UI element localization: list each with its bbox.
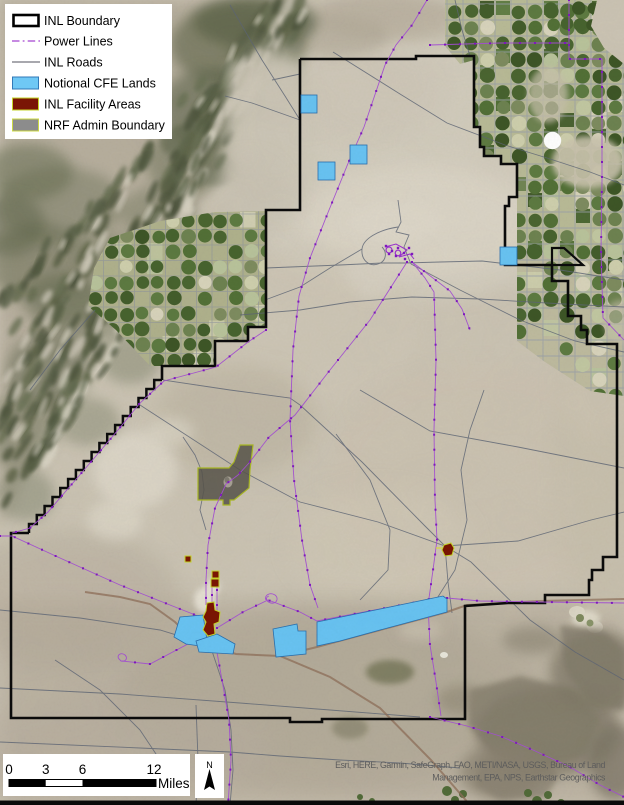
svg-text:N: N: [206, 760, 213, 770]
svg-text:INL Boundary: INL Boundary: [44, 14, 121, 28]
svg-text:12: 12: [146, 762, 161, 777]
svg-text:Miles: Miles: [158, 776, 190, 791]
svg-text:3: 3: [42, 762, 50, 777]
svg-text:INL Facility Areas: INL Facility Areas: [44, 97, 141, 111]
svg-text:INL Roads: INL Roads: [44, 55, 103, 69]
svg-text:Power Lines: Power Lines: [44, 34, 113, 48]
svg-text:Notional CFE Lands: Notional CFE Lands: [44, 76, 156, 90]
svg-text:0: 0: [5, 762, 13, 777]
svg-text:6: 6: [79, 762, 87, 777]
svg-text:Management, EPA, NPS, Earthsta: Management, EPA, NPS, Earthstar Geograph…: [432, 773, 606, 783]
svg-text:NRF Admin Boundary: NRF Admin Boundary: [44, 118, 166, 132]
svg-text:Esri, HERE, Garmin, SafeGraph,: Esri, HERE, Garmin, SafeGraph, FAO, METI…: [335, 760, 605, 770]
